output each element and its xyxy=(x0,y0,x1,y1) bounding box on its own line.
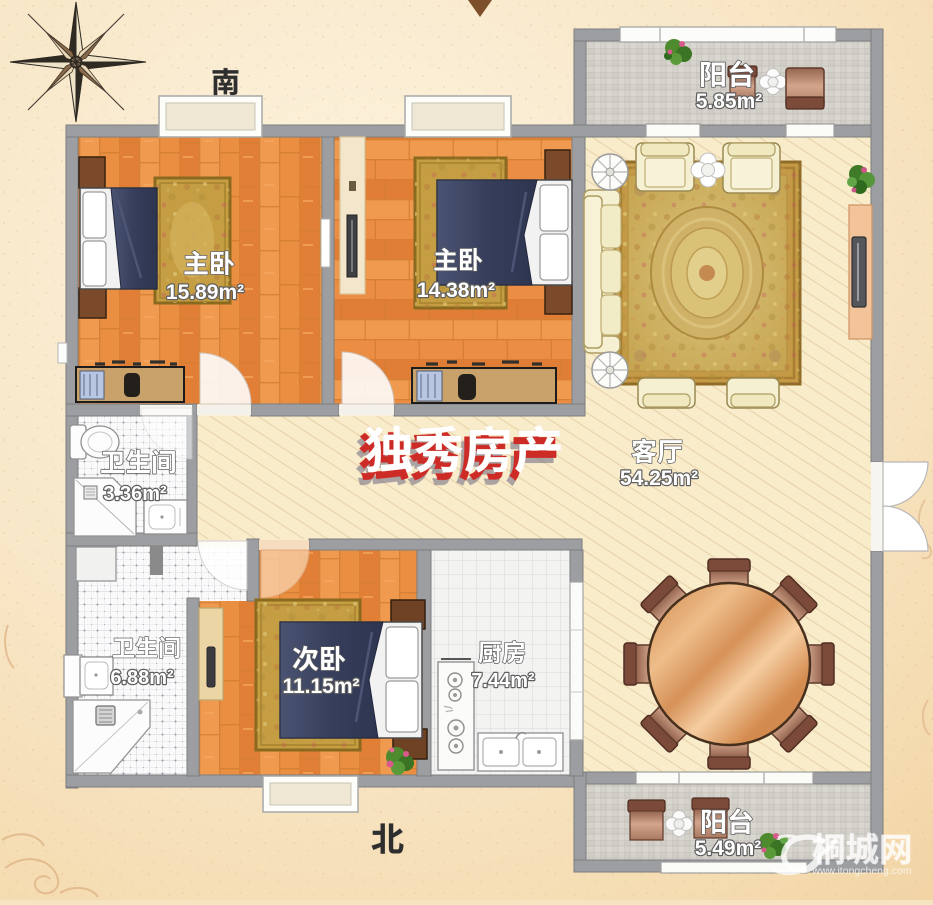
svg-text:14.38m²: 14.38m² xyxy=(417,279,495,302)
svg-text:54.25m²: 54.25m² xyxy=(620,467,698,490)
svg-text:15.89m²: 15.89m² xyxy=(166,281,244,304)
svg-text:3.36m²: 3.36m² xyxy=(103,483,167,505)
svg-text:7.44m²: 7.44m² xyxy=(471,670,535,692)
svg-text:www.itongcheng.com: www.itongcheng.com xyxy=(811,865,911,877)
svg-text:6.88m²: 6.88m² xyxy=(110,667,174,689)
svg-text:11.15m²: 11.15m² xyxy=(282,675,359,698)
svg-text:5.49m²: 5.49m² xyxy=(695,837,762,860)
svg-text:5.85m²: 5.85m² xyxy=(696,90,763,113)
